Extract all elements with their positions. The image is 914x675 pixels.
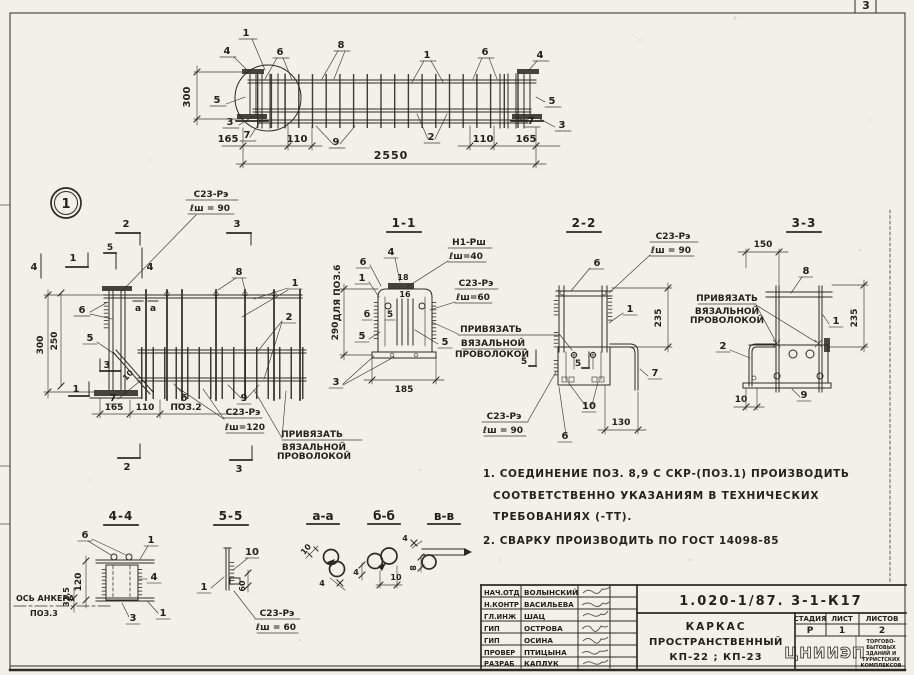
org-line5: КОМПЛЕКСОВ <box>861 663 902 669</box>
callout-5-b: 5 <box>359 331 366 342</box>
callout-4-far-right: 4 <box>537 50 544 61</box>
cut-mark-3-bottom: 3 <box>236 464 243 475</box>
section-4-4-title: 4-4 <box>109 509 134 523</box>
page-number: 3 <box>862 0 870 12</box>
callout-6: 6 <box>82 530 89 541</box>
callout-5: 5 <box>87 333 94 344</box>
callout-1-left: 1 <box>243 28 250 39</box>
tie-note-line1: ПРИВЯЗАТЬ <box>460 325 522 335</box>
callout-9: 9 <box>801 390 808 401</box>
callout-1-right: 1 <box>424 50 431 61</box>
callout-4: 4 <box>151 572 158 583</box>
dim-165-right: 165 <box>516 134 537 145</box>
section-3-3-title: 3-3 <box>792 216 817 230</box>
callout-1: 1 <box>201 582 208 593</box>
callout-1-bottom: 1 <box>160 608 167 619</box>
weld-length-90-top: ℓш = 90 <box>650 246 691 256</box>
staff-name: ОСТРОВА <box>524 624 563 633</box>
tie-note-line3: ПРОВОЛОКОЙ <box>690 314 764 326</box>
callout-6: 6 <box>360 257 367 268</box>
weld-label-c23: С23-Рэ <box>260 609 295 619</box>
callout-4: 4 <box>388 247 395 258</box>
section-1-1-title: 1-1 <box>392 216 417 230</box>
callout-1-top: 1 <box>148 535 155 546</box>
callout-2: 2 <box>286 312 293 323</box>
cut-mark-2-top: 2 <box>123 219 130 230</box>
note-line-4: 2. СВАРКУ ПРОИЗВОДИТЬ ПО ГОСТ 14098-85 <box>483 535 779 547</box>
section-5-5-title: 5-5 <box>219 509 244 523</box>
weld-label-c23-90-top: С23-Рэ <box>656 232 691 242</box>
cut-mark-5-top: 5 <box>107 243 113 253</box>
weld-label-c23-60: С23-Рэ <box>459 279 494 289</box>
dim-4: 4 <box>402 534 408 543</box>
callout-10: 10 <box>582 401 596 412</box>
callout-5-left: 5 <box>214 95 221 106</box>
dim-235: 235 <box>850 309 860 328</box>
dim-8: 8 <box>409 565 418 571</box>
cut-mark-5-right: 5 <box>575 359 581 369</box>
label-pos-2: ПОЗ.2 <box>170 403 201 413</box>
callout-3-left: 3 <box>227 117 234 128</box>
sheet-header: ЛИСТ <box>831 615 853 623</box>
callout-6-right: 6 <box>482 47 489 58</box>
callout-7-right: 7 <box>528 116 535 127</box>
drawing-title-line1: КАРКАС <box>686 621 747 633</box>
staff-role: ГЛ.ИНЖ <box>484 613 517 621</box>
dim-4: 4 <box>353 568 359 577</box>
drawing-canvas: 3 300 165 110 <box>0 0 914 675</box>
cut-mark-1-left: 1 <box>70 253 77 264</box>
dim-165: 165 <box>105 403 124 413</box>
weld-label-n1-rsh: Н1-Рш <box>452 238 486 248</box>
callout-b: б <box>364 309 370 320</box>
tie-note-line3: ПРОВОЛОКОЙ <box>455 348 529 360</box>
cut-mark-4-mid: 4 <box>147 262 154 273</box>
weld-label-c23-90: С23-Рэ <box>194 190 229 200</box>
drawing-title-line2: ПРОСТРАНСТВЕННЫЙ <box>649 635 783 648</box>
tie-note-line1: ПРИВЯЗАТЬ <box>281 430 343 440</box>
cut-mark-5-left: 5 <box>521 357 527 367</box>
callout-5-a: 5 <box>387 310 393 320</box>
callout-6-bottom: 6 <box>562 431 569 442</box>
cut-mark-3-side: 3 <box>104 360 111 371</box>
section-a-a-title: а-а <box>312 509 333 523</box>
dim-120: 120 <box>74 573 84 592</box>
dim-110: 110 <box>136 403 155 413</box>
dim-60: 60 <box>238 580 247 592</box>
callout-6-top: 6 <box>594 258 601 269</box>
dim-250: 250 <box>50 332 60 351</box>
sheets-header: ЛИСТОВ <box>866 615 899 623</box>
staff-name: ШАЦ <box>524 612 545 621</box>
staff-name: ОСИНА <box>524 636 553 645</box>
callout-5-c: 5 <box>442 337 449 348</box>
staff-name: ВАСИЛЬЕВА <box>524 600 574 609</box>
drawing-title-line3: КП-22 ; КП-23 <box>669 652 762 663</box>
callout-8: 8 <box>338 40 345 51</box>
sheet-value: 1 <box>839 626 845 636</box>
weld-length-90: ℓш = 90 <box>189 204 230 214</box>
dim-4: 4 <box>319 579 325 588</box>
stage-value: Р <box>807 626 814 636</box>
callout-6-left: 6 <box>277 47 284 58</box>
weld-label-c23-90-bottom: С23-Рэ <box>487 412 522 422</box>
dim-185: 185 <box>395 385 414 395</box>
org-logo: ЦНИИЭП <box>784 644 865 662</box>
stage-header: СТАДИЯ <box>794 615 827 623</box>
weld-length-120: ℓш=120 <box>224 423 265 433</box>
dim-2550: 2550 <box>374 149 409 162</box>
callout-8: 8 <box>236 267 243 278</box>
section-b-b-title: б-б <box>373 509 395 523</box>
section-a-mark-1: а <box>135 304 141 314</box>
callout-1: 1 <box>292 278 299 289</box>
callout-3-right: 3 <box>559 120 566 131</box>
detail-bubble-number: 1 <box>61 197 70 212</box>
section-v-v-title: в-в <box>434 509 455 523</box>
callout-5-right: 5 <box>549 96 556 107</box>
cut-mark-3-top: 3 <box>234 219 241 230</box>
callout-4-left: 4 <box>224 46 231 57</box>
tie-note-line2: ВЯЗАЛЬНОЙ <box>461 337 525 349</box>
document-number: 1.020-1/87. 3-1-К17 <box>679 594 862 609</box>
label-for-pos-6: ДЛЯ ПОЗ.6 <box>333 265 343 322</box>
callout-16: 16 <box>399 290 411 299</box>
drawing-sheet: 3 300 165 110 <box>0 0 914 675</box>
section-a-mark-2: а <box>150 304 156 314</box>
note-line-1: 1. СОЕДИНЕНИЕ ПОЗ. 8,9 С СКР-(ПОЗ.1) ПРО… <box>483 468 849 480</box>
dim-300: 300 <box>182 87 193 108</box>
cut-mark-4-left: 4 <box>31 262 38 273</box>
paper-background <box>0 0 914 675</box>
dim-150: 150 <box>754 240 773 250</box>
staff-role: ГИП <box>484 637 500 645</box>
weld-label-c23-120: С23-Рэ <box>226 408 261 418</box>
callout-6: 6 <box>79 305 86 316</box>
staff-name: ПТИЦЫНА <box>524 648 567 657</box>
dim-110-right: 110 <box>473 134 494 145</box>
callout-10: 10 <box>245 547 259 558</box>
callout-1: 1 <box>359 273 366 284</box>
weld-length-60: ℓш = 60 <box>255 623 296 633</box>
callout-7: 7 <box>652 368 659 379</box>
note-line-2: СООТВЕТСТВЕННО УКАЗАНИЯМ В ТЕХНИЧЕСКИХ <box>493 490 819 502</box>
tie-note-line1: ПРИВЯЗАТЬ <box>696 294 758 304</box>
callout-9: 9 <box>333 137 340 148</box>
dim-235: 235 <box>654 309 664 328</box>
dim-110-left: 110 <box>287 134 308 145</box>
callout-2: 2 <box>428 132 435 143</box>
dim-130: 130 <box>612 418 631 428</box>
callout-9: 9 <box>241 393 248 404</box>
callout-1: 1 <box>833 316 840 327</box>
cut-mark-1-bottom: 1 <box>73 384 80 395</box>
weld-length-60: ℓш=60 <box>455 293 490 303</box>
staff-name: КАПЛУК <box>524 659 559 668</box>
callout-3: 3 <box>130 613 137 624</box>
staff-role: Н.КОНТР <box>484 601 519 609</box>
dim-10: 10 <box>735 395 748 405</box>
staff-role: ГИП <box>484 625 500 633</box>
callout-8: 8 <box>803 266 810 277</box>
section-2-2-title: 2-2 <box>572 216 597 230</box>
weld-length-40: ℓш=40 <box>448 252 483 262</box>
dim-300: 300 <box>36 336 46 355</box>
axis-label-line2: ПОЗ.3 <box>30 609 58 618</box>
cut-mark-2-bottom: 2 <box>124 462 131 473</box>
callout-3: 3 <box>333 377 340 388</box>
staff-role: ПРОВЕР <box>484 649 515 657</box>
sheets-value: 2 <box>879 626 885 636</box>
staff-role: РАЗРАБ <box>484 660 515 668</box>
axis-label-line1: ОСЬ АНКЕРА <box>16 594 75 603</box>
weld-length-90-bottom: ℓш = 90 <box>482 426 523 436</box>
note-line-3: ТРЕБОВАНИЯХ (-ТТ). <box>493 511 632 523</box>
staff-name: ВОЛЫНСКИЙ <box>524 588 578 597</box>
dim-165-left: 165 <box>218 134 239 145</box>
callout-2: 2 <box>720 341 727 352</box>
staff-role: НАЧ.ОТД <box>484 589 520 597</box>
callout-7-left: 7 <box>244 130 251 141</box>
callout-1: 1 <box>627 304 634 315</box>
org-line3: ЗДАНИЙ И <box>866 649 896 657</box>
dim-10: 10 <box>390 573 402 582</box>
dim-290: 290 <box>331 322 341 341</box>
tie-note-line3: ПРОВОЛОКОЙ <box>277 450 351 462</box>
